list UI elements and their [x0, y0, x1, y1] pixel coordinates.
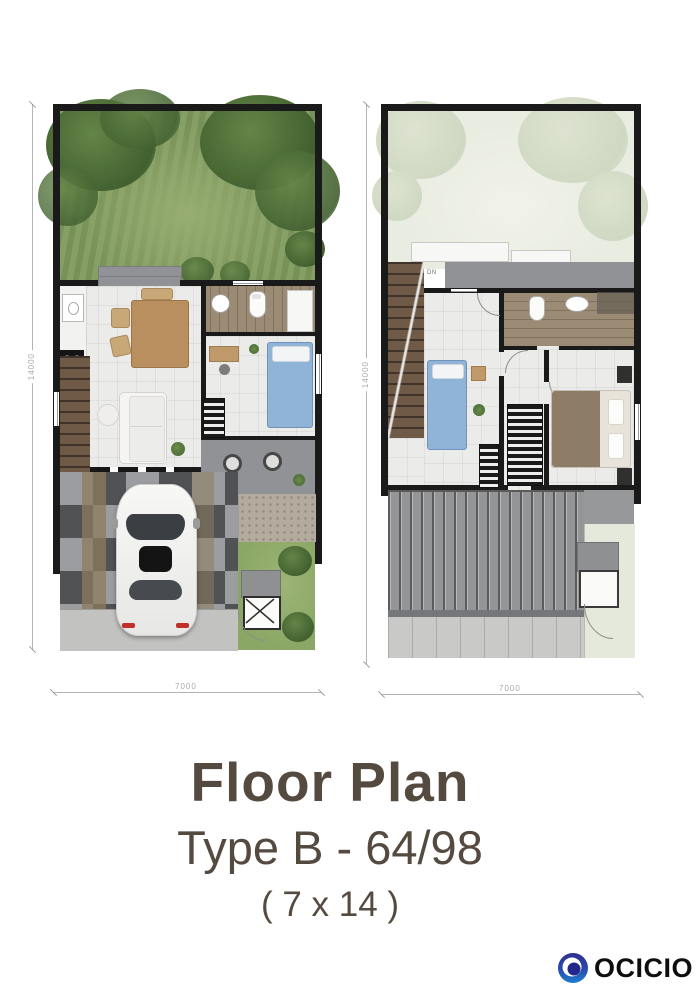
dim-text: 7000 [496, 684, 524, 693]
window [451, 289, 477, 292]
dim-line [53, 692, 322, 693]
car-mirror-right [193, 518, 200, 529]
bed-blanket [552, 391, 600, 467]
washbasin [211, 294, 230, 313]
sofa [119, 392, 167, 464]
car-taillight-left [122, 623, 135, 628]
pillow [608, 399, 624, 425]
first-floor-plan [53, 104, 322, 650]
bedside-table [471, 366, 486, 381]
bed-second-floor-small [427, 360, 467, 450]
wall-bath-bottom-left [503, 346, 537, 350]
desk [209, 346, 239, 362]
car-sunroof [139, 546, 172, 572]
washbasin-second [565, 296, 589, 312]
window [233, 281, 263, 285]
shrub [282, 612, 314, 642]
utility-box [579, 570, 619, 608]
faded-shrub [372, 171, 422, 221]
ocicio-logo-text: OCICIO [594, 953, 693, 984]
floor-plan-page: 14000 7000 DN [0, 0, 698, 1000]
dim-text: 14000 [27, 350, 36, 383]
plant [249, 344, 259, 354]
potted-plant [171, 442, 185, 456]
wardrobe-corridor [507, 404, 543, 486]
stairs-second-floor [388, 262, 424, 438]
brand-logo: OCICIO [557, 952, 693, 984]
stairs-first-floor [60, 356, 90, 472]
toilet [249, 291, 266, 318]
bed-master [551, 390, 631, 468]
roof-edge [388, 610, 584, 617]
wall-master-left-upper [544, 350, 549, 382]
bed-first-floor [267, 342, 313, 428]
window [316, 354, 321, 394]
window [54, 392, 59, 426]
stairs-down-label: DN [427, 270, 437, 276]
wardrobe-small [479, 444, 499, 488]
wall-top [381, 104, 641, 111]
tree-canopy [255, 151, 340, 231]
toilet-second [529, 296, 545, 321]
dim-text: 7000 [172, 682, 200, 691]
shower [287, 290, 313, 332]
car-rear-window [129, 580, 182, 600]
second-floor-plan: DN [381, 104, 641, 665]
wall-left [53, 104, 60, 574]
patio-chair [223, 454, 242, 473]
sofa-cushions [129, 396, 165, 462]
backyard-garden [60, 111, 315, 283]
stair-landing [388, 438, 424, 490]
dining-chair [111, 308, 130, 328]
patio-chair [263, 452, 282, 471]
utility-cabinet-top [241, 570, 281, 598]
dim-line [381, 694, 641, 695]
tree-canopy [100, 89, 180, 149]
plan-type-subtitle: Type B - 64/98 [0, 821, 679, 875]
pillow [272, 346, 310, 362]
wall-right [315, 104, 322, 564]
nightstand [617, 468, 632, 485]
toilet-tank [252, 294, 261, 299]
dining-bench [141, 288, 173, 300]
page-title: Floor Plan [0, 752, 679, 813]
step-line [99, 276, 181, 277]
shrub [38, 166, 98, 226]
side-table [97, 404, 119, 426]
wall-left [381, 104, 388, 496]
shrub [278, 546, 312, 576]
nightstand [617, 366, 632, 383]
wall-master-left-lower [544, 404, 549, 490]
gravel-patch [238, 494, 316, 542]
desk-chair [219, 364, 230, 375]
ocicio-logo-icon [557, 952, 589, 984]
car-mirror-left [111, 518, 118, 529]
driveway-below [388, 617, 584, 658]
wall-bath-bottom-right [559, 346, 634, 350]
wall-bedroom2-right [499, 376, 504, 490]
dining-chair [109, 334, 132, 358]
pillow [432, 364, 464, 379]
carport-roof [388, 490, 584, 618]
window [635, 404, 640, 440]
roof-ridge-panel [411, 242, 509, 262]
paver-accent [82, 472, 106, 609]
plant [293, 474, 305, 486]
car-windshield [126, 514, 185, 540]
pillow [608, 433, 624, 459]
faded-tree [376, 101, 466, 179]
sofa-seam [130, 426, 162, 427]
side-ledge [584, 490, 634, 524]
car [116, 484, 195, 634]
lot-size-note: ( 7 x 14 ) [0, 885, 679, 925]
wardrobe [203, 398, 225, 438]
title-block: Floor Plan Type B - 64/98 ( 7 x 14 ) [0, 752, 679, 925]
stair-flight-divider [388, 262, 424, 438]
dining-table [131, 300, 189, 368]
car-taillight-right [176, 623, 189, 628]
wall-bath-bedroom [201, 332, 315, 336]
vanity-counter [597, 292, 634, 314]
wall-right [634, 104, 641, 504]
dim-text: 14000 [361, 358, 370, 391]
kitchen-sink [62, 294, 84, 322]
sink-basin [68, 302, 79, 315]
utility-cabinet-top [577, 542, 619, 572]
wall-top [53, 104, 322, 111]
plant [473, 404, 485, 416]
